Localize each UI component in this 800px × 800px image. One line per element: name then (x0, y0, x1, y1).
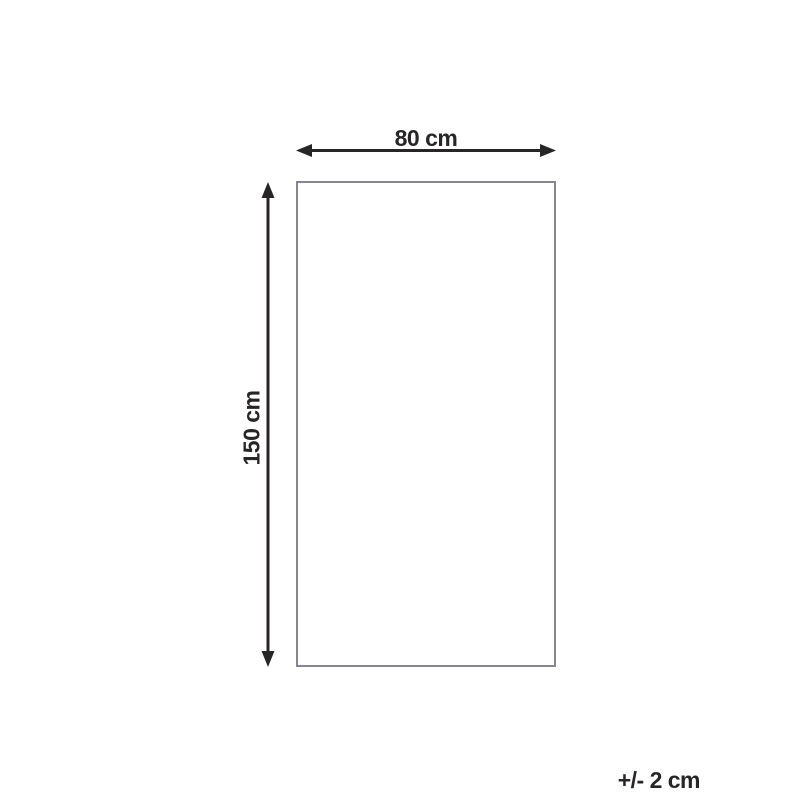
height-arrow-head-bottom-icon (262, 651, 275, 667)
tolerance-label: +/- 2 cm (618, 769, 700, 792)
height-label: 150 cm (241, 390, 264, 465)
height-arrow-head-top-icon (262, 182, 275, 198)
dimension-diagram: 80 cm 150 cm +/- 2 cm (0, 0, 800, 800)
diagram-canvas (0, 0, 800, 800)
width-label: 80 cm (296, 127, 556, 150)
product-outline-rect (297, 182, 555, 666)
